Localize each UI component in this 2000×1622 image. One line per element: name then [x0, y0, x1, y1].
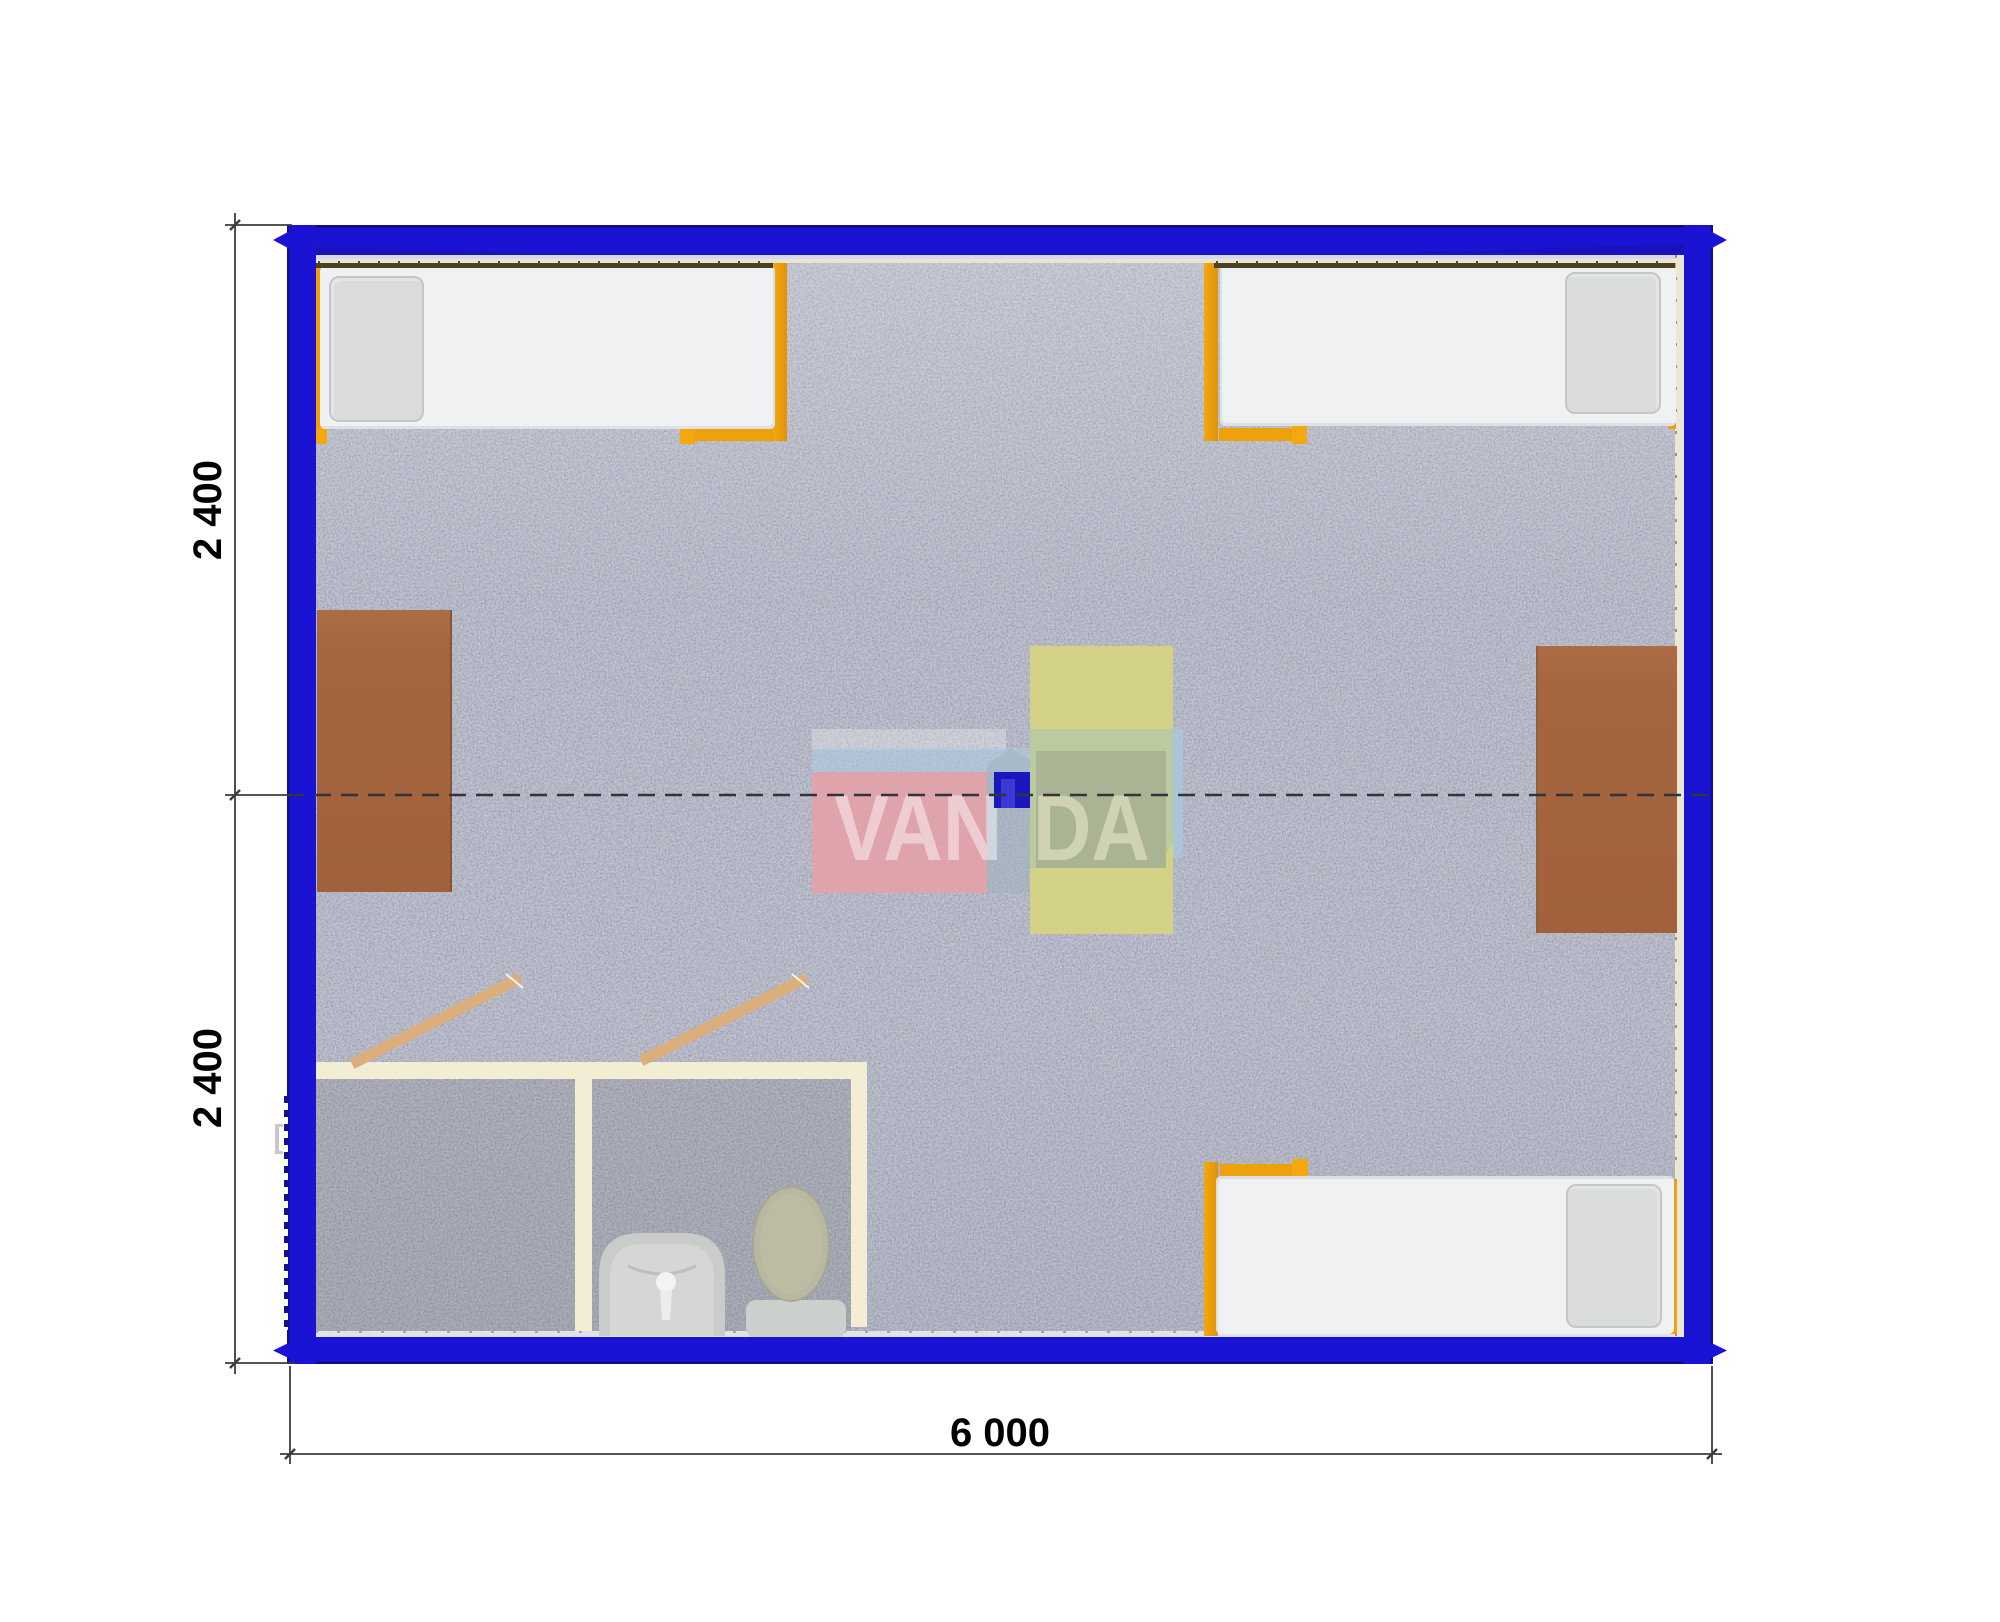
svg-text:2 400: 2 400 [186, 460, 230, 560]
svg-text:2 400: 2 400 [186, 1028, 230, 1128]
svg-text:6 000: 6 000 [950, 1411, 1050, 1455]
